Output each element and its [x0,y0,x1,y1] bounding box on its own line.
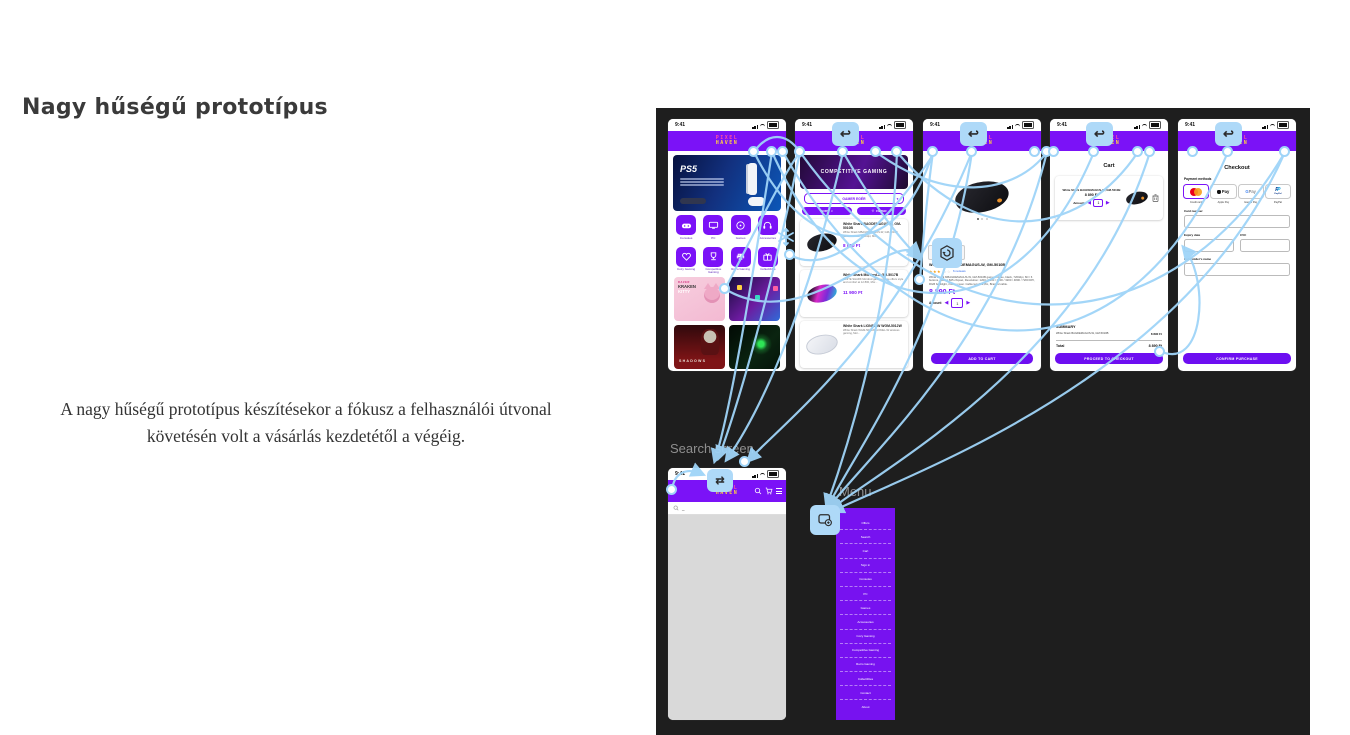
signal-icon [879,125,884,129]
connector-node[interactable] [719,283,730,294]
signal-icon [1262,125,1267,129]
status-icons [752,121,779,129]
status-icons [879,121,906,129]
menu-item-retro-gaming[interactable]: Retro Gaming [840,658,891,672]
rating-row[interactable]: ★★★ ☆☆ 6 reviews [929,269,1035,274]
back-action-icon[interactable]: ↩ [1215,122,1242,146]
frame-label-search-screen[interactable]: Search screen [670,441,754,456]
product-card-green[interactable] [729,325,780,369]
banner-cta-pill[interactable] [680,198,706,204]
connector-node[interactable] [666,484,677,495]
stars-filled-icon: ★★★ [929,269,941,274]
ps5-banner[interactable]: PS5 [673,155,781,211]
connector-node[interactable] [837,146,848,157]
page-paragraph: A nagy hűségű prototípus készítésekor a … [25,396,587,450]
status-bar: 9:41 [668,119,786,131]
product-name: White Shark BAGDEMAGUS-W, GM-5010B [843,222,905,230]
cat-headset-art [704,287,720,303]
payment-credit-card[interactable]: Credit card [1184,184,1208,204]
google-pay-icon: GPay [1238,184,1264,199]
menu-item-competitive-gaming[interactable]: Competitive Gaming [840,644,891,658]
battery-icon [894,121,906,129]
amount-value[interactable]: 1 [1093,199,1103,208]
screen-checkout: 9:41 PIXELHAVEN Checkout Payment methods… [1178,119,1296,371]
payment-methods: Credit card Pay Apple Pay GPay Google Pa… [1184,184,1290,204]
sort-button[interactable]: SORT ▼ [802,207,852,215]
shadows-art [701,329,719,355]
category-pc[interactable]: PC [701,215,725,244]
swap-back-action-icon[interactable]: ⇄ [707,469,733,492]
signal-icon [1134,125,1139,129]
connector-node[interactable] [927,146,938,157]
snowflake-marker-icon [776,227,796,247]
cardholder-input[interactable] [1184,263,1290,276]
chevron-down-icon: ▼ [831,210,833,213]
status-time: 9:41 [930,122,940,128]
headset-icon [758,215,778,235]
confirm-purchase-button[interactable]: CONFIRM PURCHASE [1183,353,1291,364]
battery-icon [767,470,779,478]
payment-methods-label: Payment methods [1184,177,1290,181]
scroll-to-action-icon[interactable] [932,238,962,268]
expiry-input[interactable] [1184,239,1234,252]
category-games[interactable]: Games [729,215,753,244]
category-retro-gaming[interactable]: Retro Gaming [729,247,753,276]
product-image-carousel[interactable] [928,159,1036,243]
trash-icon[interactable] [1152,189,1159,207]
search-input[interactable]: _ [668,502,786,515]
search-icon[interactable] [754,482,762,500]
product-card-shadows[interactable]: SHADOWS [674,325,725,369]
product-name: White Shark LIONEL-W WGM-5012W [843,324,905,328]
increase-button[interactable]: ▶ [1106,201,1110,206]
category-consoles[interactable]: Consoles [674,215,698,244]
ps5-banner-title: PS5 [680,164,697,174]
proceed-to-checkout-button[interactable]: PROCEED TO CHECKOUT [1055,353,1163,364]
checkout-title: Checkout [1178,165,1296,171]
sort-filter-row: SORT ▼ ♡ FILTER ▼ [802,207,906,215]
connector-node[interactable] [1132,146,1143,157]
invader-icon [731,247,751,267]
chevron-down-icon: ▼ [889,210,891,213]
product-price: 8 890 Ft [929,289,1035,296]
connector-node[interactable] [739,456,750,467]
amount-label: Amount [929,301,941,305]
connector-node[interactable] [891,146,902,157]
summary-heading: SUMMARY [1056,325,1162,329]
search-field-icon [673,505,679,511]
cart-item-name: White Shark BAGDEMAGUS-W, GM-5010B [1059,189,1124,193]
product-desc: WHITE SHARK Mordred gamer mouse offers s… [843,278,905,288]
status-time: 9:41 [675,122,685,128]
payment-paypal[interactable]: PPPayPal PayPal [1266,184,1290,204]
battery-icon [1022,121,1034,129]
cart-item-price: 8 890 Ft [1059,193,1124,197]
connector-node[interactable] [966,146,977,157]
trophy-icon [703,247,723,267]
search-results-empty-area [668,515,786,720]
dropdown-value: GAMER EGÉR [842,197,865,201]
category-cozy-gaming[interactable]: Cozy Gaming [674,247,698,276]
status-time: 9:41 [1057,122,1067,128]
battery-icon [1149,121,1161,129]
competitive-gaming-title: COMPETITIVE GAMING [821,169,888,175]
figma-canvas[interactable]: 9:41 PIXEL HAVEN PS5 [656,108,1310,735]
connector-node[interactable] [766,146,777,157]
product-list-item[interactable]: White Shark LIONEL-W WGM-5012W White Sha… [800,321,908,368]
menu-item-sign-in[interactable]: Sign in [840,559,891,573]
connector-node[interactable] [1222,146,1233,157]
cart-summary: SUMMARY White Shark BAGDEMAGUS-W, GM-501… [1056,325,1162,348]
mouse-image [803,273,841,314]
connector-node[interactable] [794,146,805,157]
signal-icon [752,125,757,129]
expiry-label: Expiry date [1184,233,1234,237]
wifi-icon [760,124,765,129]
category-competitive-gaming[interactable]: Competitive Gaming [701,247,725,276]
mouse-image [803,222,841,263]
product-card-kraken-kitty[interactable]: RAZER KRAKEN KITTY [674,277,725,321]
menu-item-about[interactable]: About [840,700,891,713]
cart-amount-stepper: Amount ◀ 1 ▶ [1059,199,1124,208]
divider [1056,340,1162,341]
kitty-line2: KITTY [678,290,696,295]
back-action-icon[interactable]: ↩ [832,122,859,146]
product-price: 11 900 Ft [843,290,905,295]
connector-node[interactable] [870,146,881,157]
product-list-item[interactable]: White Shark Mordred-B GM-5017B WHITE SHA… [800,270,908,317]
brand-logo: PIXEL HAVEN [716,136,739,147]
connector-node[interactable] [777,146,788,157]
mouse-image [803,324,841,365]
screen-search: 9:41 PIXELHAVEN _ [668,468,786,720]
menu-item-collectibles[interactable]: Collectibles [840,672,891,686]
product-desc: White Shark MBAGDEMAGUS-W, GM-5010B game… [843,231,905,241]
ps5-console-art [748,163,757,195]
wifi-icon [887,124,892,129]
increase-button[interactable]: ▶ [966,301,970,306]
heart-icon: ♡ [872,209,875,213]
connector-node[interactable] [1154,346,1165,357]
apple-pay-icon: Pay [1210,184,1236,199]
add-to-cart-button[interactable]: ADD TO CART [931,353,1033,364]
screen-home: 9:41 PIXEL HAVEN PS5 [668,119,786,371]
category-dropdown[interactable]: GAMER EGÉR ▼ [804,193,904,204]
connector-node[interactable] [914,274,925,285]
status-icons [752,470,779,478]
shadows-label: SHADOWS [679,359,706,363]
menu-item-search[interactable]: Search [840,530,891,544]
paypal-icon: PPPayPal [1265,184,1291,199]
menu-item-cart[interactable]: Cart [840,544,891,558]
product-desc: White Shark WGM-5012W, LIONEL-W wireless… [843,329,905,339]
menu-item-offers[interactable]: Offers [840,516,891,530]
frame-label-menu[interactable]: Menu [839,484,872,499]
product-mouse-image [952,177,1011,218]
stars-empty-icon: ☆☆ [943,269,951,274]
wifi-icon [1270,124,1275,129]
mastercard-icon [1183,184,1209,199]
menu-item-pc[interactable]: PC [840,587,891,601]
card-number-label: Card number [1184,209,1290,213]
status-icons [1007,121,1034,129]
status-icons [1134,121,1161,129]
amount-stepper: Amount ◀ 1 ▶ [929,298,1035,308]
brand-line2: HAVEN [716,141,739,146]
ps5-controller-art [748,197,765,206]
menu-item-cozy-gaming[interactable]: Cozy Gaming [840,630,891,644]
page-title: Nagy hűségű prototípus [22,95,328,120]
category-grid: Consoles PC Games Accessories Cozy Gamin… [674,215,780,275]
status-time: 9:41 [802,122,812,128]
cvc-label: CVC [1240,233,1290,237]
summary-line-item: White Shark BAGDEMAGUS-W, GM-5010B 8 890… [1056,332,1162,336]
cart-icon[interactable] [765,482,773,500]
status-time: 9:41 [675,471,685,477]
connector-node[interactable] [748,146,759,157]
disc-icon [731,215,751,235]
status-icons [1262,121,1289,129]
wifi-icon [1015,124,1020,129]
battery-icon [1277,121,1289,129]
total-row: Total 8 890 Ft [1056,344,1162,348]
cvc-input[interactable] [1240,239,1290,252]
signal-icon [752,474,757,478]
page: { "page": { "title": "Nagy hűségű protot… [0,0,1350,735]
connector-node[interactable] [1187,146,1198,157]
status-time: 9:41 [1185,122,1195,128]
connector-node[interactable] [1144,146,1155,157]
amount-value[interactable]: 1 [951,298,963,308]
banner-text-lines [680,178,724,188]
product-list: White Shark BAGDEMAGUS-W, GM-5010B White… [800,219,908,368]
cart-item-image [1124,192,1150,204]
decrease-button[interactable]: ◀ [944,301,948,306]
gift-icon [758,247,778,267]
menu-item-contact[interactable]: Contact [840,686,891,700]
hamburger-menu-icon[interactable] [776,488,782,493]
menu-item-consoles[interactable]: Consoles [840,573,891,587]
signal-icon [1007,125,1012,129]
cardholder-label: Cardholder's name [1184,257,1290,261]
monitor-icon [703,215,723,235]
category-collectibles[interactable]: Collectibles [756,247,780,276]
wifi-icon [1142,124,1147,129]
back-action-icon[interactable]: ↩ [960,122,987,146]
screen-menu: Offers Search Cart Sign in Consoles PC G… [836,508,895,720]
heart-icon [676,247,696,267]
connector-node[interactable] [1048,146,1059,157]
product-description: White Shark MBAGDEMAGUS-W, GM-5010B game… [929,276,1035,287]
green-glow-art [750,333,772,355]
reviews-link[interactable]: 6 reviews [953,269,966,273]
menu-item-games[interactable]: Games [840,601,891,615]
wifi-icon [760,473,765,478]
filter-button[interactable]: ♡ FILTER ▼ [857,207,907,215]
payment-google-pay[interactable]: GPay Google Pay [1239,184,1263,204]
competitive-gaming-banner: COMPETITIVE GAMING [800,155,908,189]
connector-node[interactable] [1088,146,1099,157]
text-cursor: _ [682,506,685,511]
connector-node[interactable] [1029,146,1040,157]
cart-item[interactable]: White Shark BAGDEMAGUS-W, GM-5010B 8 890… [1055,176,1163,220]
connector-node[interactable] [1279,146,1290,157]
menu-item-accessories[interactable]: Accessories [840,615,891,629]
connector-node[interactable] [784,249,795,260]
product-name: White Shark Mordred-B GM-5017B [843,273,905,277]
gamepad-icon [676,215,696,235]
payment-apple-pay[interactable]: Pay Apple Pay [1211,184,1235,204]
product-price: 8 890 Ft [843,243,905,248]
back-action-icon[interactable]: ↩ [1086,122,1113,146]
chevron-down-icon: ▼ [896,197,899,201]
product-card-arcade[interactable] [729,277,780,321]
open-overlay-action-icon[interactable] [810,505,840,535]
decrease-button[interactable]: ◀ [1087,201,1091,206]
product-list-item[interactable]: White Shark BAGDEMAGUS-W, GM-5010B White… [800,219,908,266]
carousel-dots[interactable] [977,218,988,220]
cart-title: Cart [1050,163,1168,169]
card-number-input[interactable] [1184,215,1290,228]
battery-icon [767,121,779,129]
